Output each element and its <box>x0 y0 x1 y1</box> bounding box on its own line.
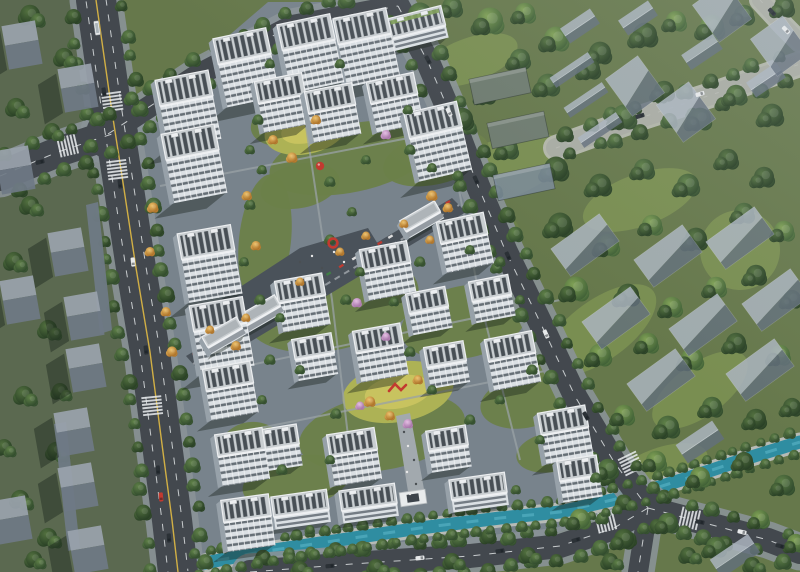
masterplan-scene <box>0 0 800 572</box>
atmospheric-haze <box>0 0 800 572</box>
haze-overlay <box>0 0 800 572</box>
aerial-rendering <box>0 0 800 572</box>
